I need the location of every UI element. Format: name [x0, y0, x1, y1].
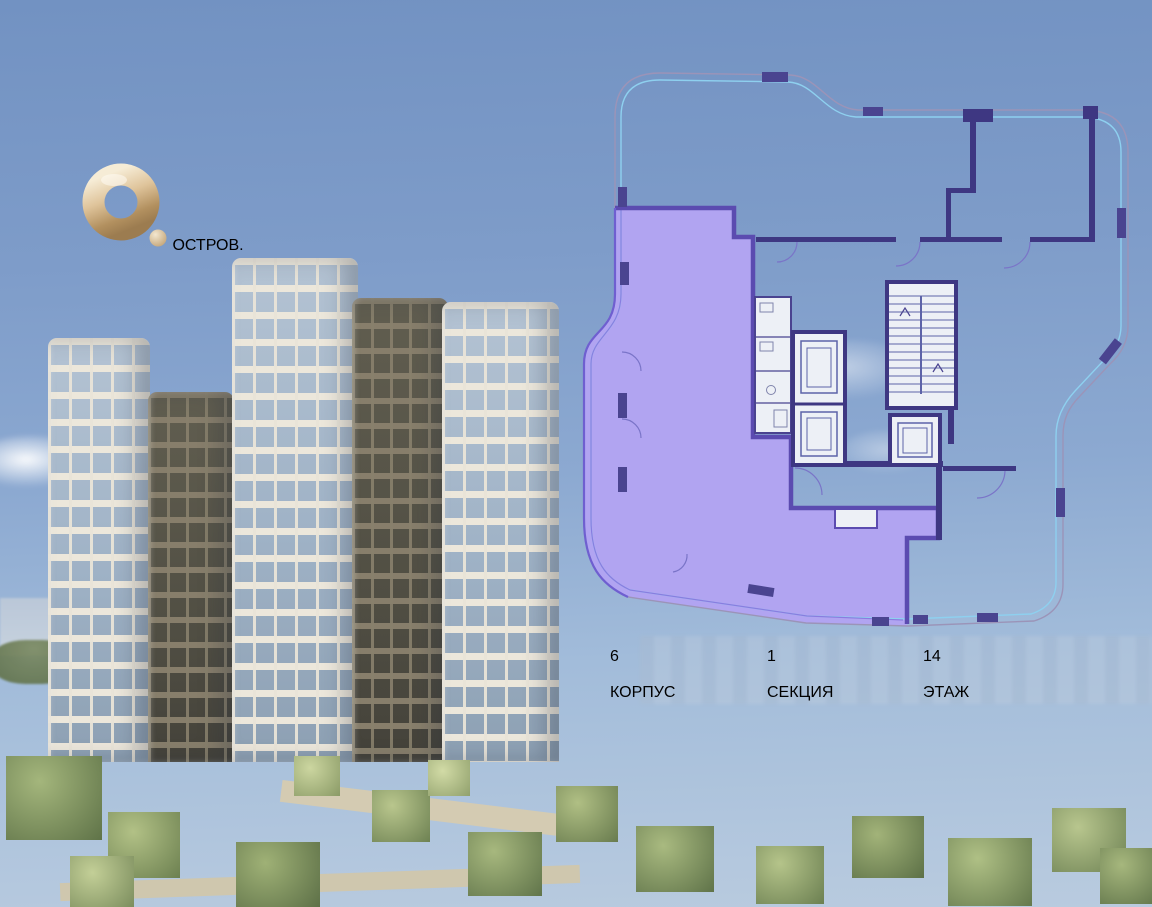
staircase: [887, 282, 956, 408]
apartment-info-row: 6 КОРПУС 1 СЕКЦИЯ 14 ЭТАЖ: [559, 640, 1152, 760]
building-label: КОРПУС: [610, 684, 675, 702]
elevator-shafts: [793, 332, 845, 465]
bathroom-block: [755, 297, 791, 433]
elevator-shaft-single: [890, 415, 940, 465]
info-section: 1 СЕКЦИЯ: [767, 648, 833, 702]
floorplan: [0, 0, 1152, 907]
section-label: СЕКЦИЯ: [767, 684, 833, 702]
building-number: 6: [610, 648, 675, 666]
info-building: 6 КОРПУС: [610, 648, 675, 702]
app-window: ОСТРОВ.: [0, 0, 1152, 907]
section-number: 1: [767, 648, 833, 666]
floor-label: ЭТАЖ: [923, 684, 969, 702]
info-floor: 14 ЭТАЖ: [923, 648, 969, 702]
floor-number: 14: [923, 648, 969, 666]
wardrobe-niche: [835, 509, 877, 528]
